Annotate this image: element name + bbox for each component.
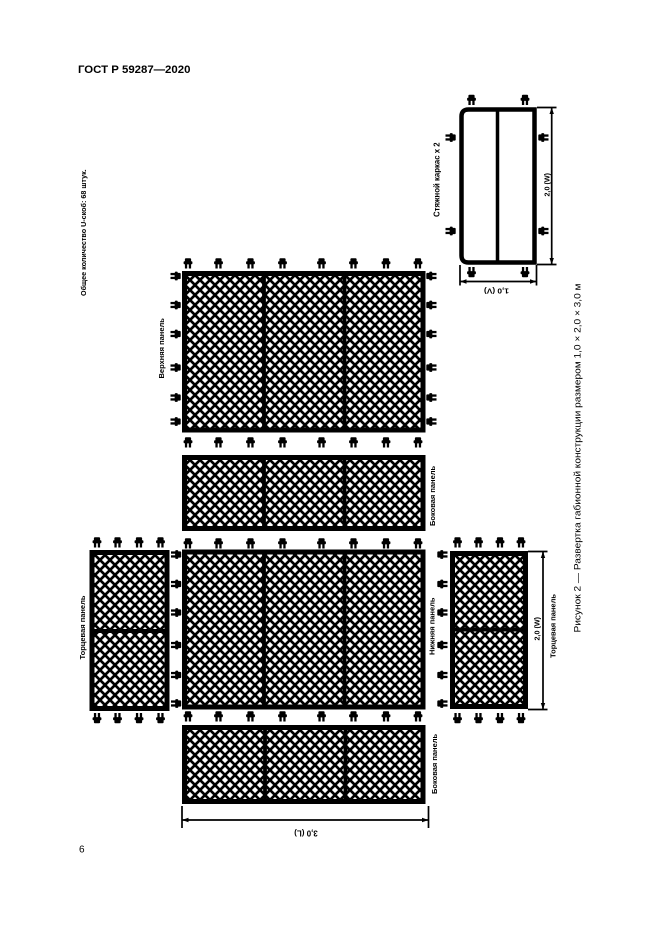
svg-text:Торцевая панель: Торцевая панель [78, 595, 87, 659]
svg-text:6: 6 [79, 845, 85, 856]
svg-text:Стяжной каркас х 2: Стяжной каркас х 2 [433, 142, 442, 217]
svg-text:Боковая панель: Боковая панель [428, 465, 437, 526]
svg-text:3,0 (L): 3,0 (L) [294, 829, 318, 838]
svg-text:ГОСТ Р 59287—2020: ГОСТ Р 59287—2020 [78, 64, 190, 76]
svg-text:Нижняя панель: Нижняя панель [428, 597, 437, 655]
svg-text:2,0 (W): 2,0 (W) [533, 616, 542, 640]
svg-text:Верхняя панель: Верхняя панель [157, 318, 166, 379]
svg-text:1,0 (V): 1,0 (V) [483, 287, 509, 296]
svg-text:Боковая панель: Боковая панель [430, 733, 439, 794]
svg-text:2,0 (W): 2,0 (W) [543, 172, 552, 196]
svg-text:Общее количество U-скоб: 68 шт: Общее количество U-скоб: 68 штук. [79, 169, 88, 296]
svg-text:Торцевая панель: Торцевая панель [549, 594, 558, 658]
svg-text:Рисунок 2 — Развертка габионно: Рисунок 2 — Развертка габионной конструк… [573, 284, 583, 633]
